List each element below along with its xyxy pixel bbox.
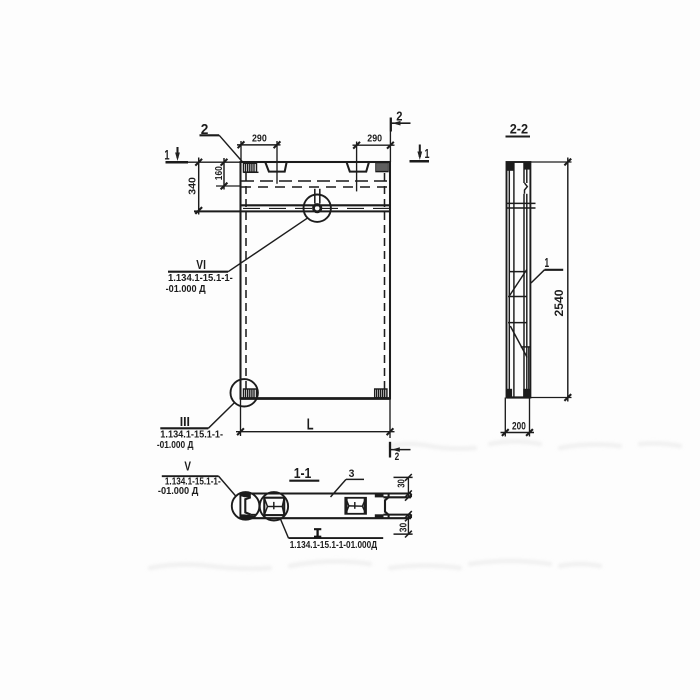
svg-text:1.134.1-15.1-1-: 1.134.1-15.1-1- bbox=[168, 273, 233, 284]
svg-text:2: 2 bbox=[396, 110, 402, 124]
svg-text:-01.000 Д: -01.000 Д bbox=[166, 284, 206, 295]
svg-text:2540: 2540 bbox=[554, 290, 566, 317]
svg-text:1.134.1-15.1-1-01.000Д: 1.134.1-15.1-1-01.000Д bbox=[290, 540, 377, 551]
svg-text:-01.000 Д: -01.000 Д bbox=[157, 440, 194, 451]
svg-text:1.134.1-15.1-1-: 1.134.1-15.1-1- bbox=[160, 430, 223, 441]
svg-text:340: 340 bbox=[188, 177, 199, 195]
svg-text:30: 30 bbox=[398, 522, 409, 532]
svg-text:1: 1 bbox=[425, 147, 430, 161]
svg-text:160: 160 bbox=[214, 166, 225, 180]
svg-text:V: V bbox=[184, 460, 191, 474]
svg-text:200: 200 bbox=[512, 420, 526, 432]
svg-text:L: L bbox=[307, 416, 314, 433]
svg-text:2-2: 2-2 bbox=[510, 121, 529, 137]
svg-text:290: 290 bbox=[367, 132, 382, 144]
svg-text:VI: VI bbox=[196, 257, 206, 272]
svg-text:-01.000 Д: -01.000 Д bbox=[158, 486, 198, 497]
svg-text:III: III bbox=[180, 414, 190, 429]
svg-text:30: 30 bbox=[395, 479, 407, 488]
svg-text:1: 1 bbox=[545, 256, 550, 270]
svg-text:3: 3 bbox=[349, 468, 355, 480]
svg-text:2: 2 bbox=[201, 121, 209, 138]
svg-text:2: 2 bbox=[395, 451, 400, 463]
svg-text:1-1: 1-1 bbox=[294, 466, 312, 482]
svg-text:1: 1 bbox=[164, 147, 170, 162]
svg-text:290: 290 bbox=[252, 133, 267, 145]
